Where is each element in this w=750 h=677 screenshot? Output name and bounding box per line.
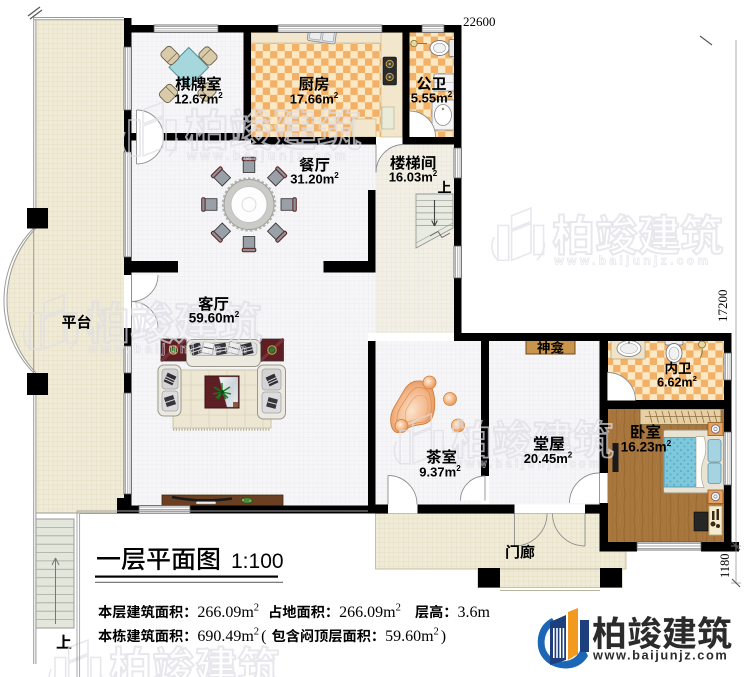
svg-text:2: 2 — [235, 309, 240, 319]
svg-text:266.09m: 266.09m — [339, 604, 396, 621]
svg-text:2: 2 — [433, 169, 438, 178]
svg-text:5.55m: 5.55m — [411, 91, 448, 106]
svg-text:2: 2 — [334, 91, 339, 100]
svg-text:20.45m: 20.45m — [524, 451, 568, 466]
svg-text:2: 2 — [448, 90, 453, 99]
svg-text:2: 2 — [396, 602, 401, 613]
svg-text:2: 2 — [434, 626, 439, 637]
svg-text:22600: 22600 — [463, 14, 496, 29]
svg-text:59.60m: 59.60m — [189, 311, 235, 326]
svg-text:31.20m: 31.20m — [290, 172, 334, 187]
svg-text:1180: 1180 — [718, 553, 732, 578]
svg-text:2: 2 — [667, 438, 672, 448]
svg-text:www.baijunjz.com: www.baijunjz.com — [87, 342, 250, 356]
svg-text:1:100: 1:100 — [231, 550, 284, 573]
svg-text:16.03m: 16.03m — [389, 170, 433, 185]
svg-text:2: 2 — [254, 602, 259, 613]
svg-text:12.67m: 12.67m — [174, 92, 218, 107]
svg-text:266.09m: 266.09m — [197, 604, 254, 621]
svg-text:www.baijunjz.com: www.baijunjz.com — [186, 149, 349, 163]
svg-text:690.49m: 690.49m — [197, 628, 254, 645]
svg-text:2: 2 — [568, 451, 573, 460]
svg-text:2: 2 — [693, 374, 697, 383]
svg-text:3.6m: 3.6m — [458, 604, 491, 621]
svg-text:2: 2 — [254, 626, 259, 637]
svg-text:6.62m: 6.62m — [657, 376, 692, 390]
svg-text:www.baijunjz.com: www.baijunjz.com — [592, 648, 728, 663]
svg-text:9.37m: 9.37m — [419, 465, 456, 480]
svg-text:2: 2 — [456, 464, 461, 473]
svg-text:17200: 17200 — [715, 290, 730, 323]
svg-text:2: 2 — [334, 171, 339, 180]
svg-text:16.23m: 16.23m — [621, 440, 667, 455]
svg-text:17.66m: 17.66m — [290, 92, 334, 107]
svg-text:59.60m: 59.60m — [385, 628, 434, 645]
svg-text:www.baijunjz.com: www.baijunjz.com — [553, 253, 711, 267]
svg-text:2: 2 — [218, 91, 223, 100]
svg-text:): ) — [441, 628, 446, 645]
svg-text:(: ( — [261, 628, 266, 645]
